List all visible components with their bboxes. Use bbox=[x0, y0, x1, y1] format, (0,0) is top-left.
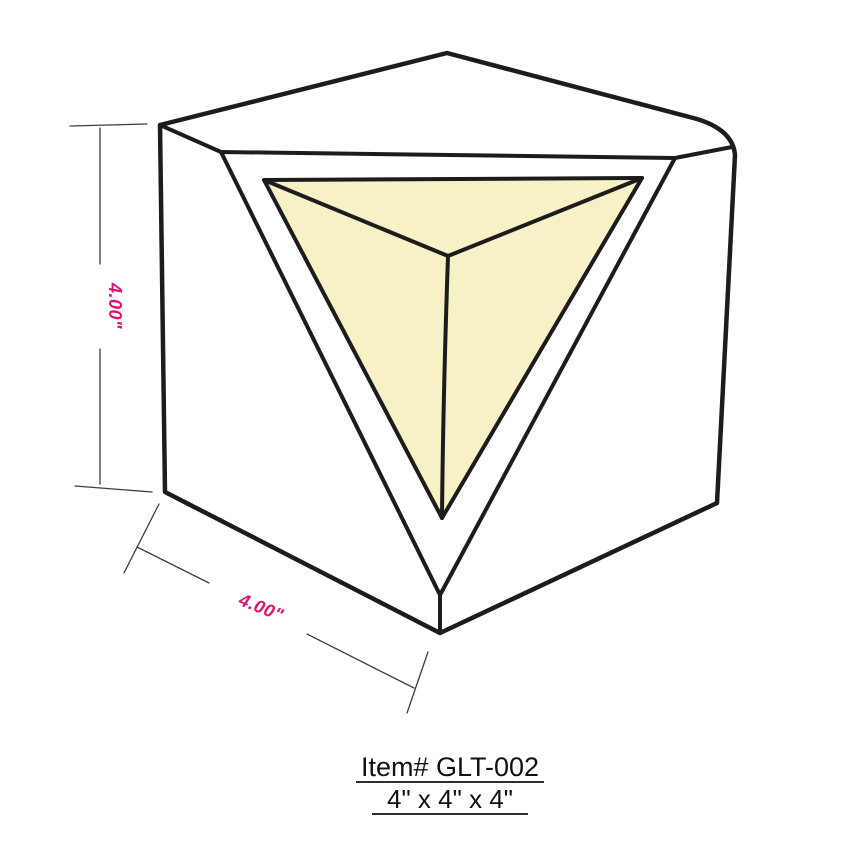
dimension-height: 4.00" bbox=[70, 124, 152, 492]
dimension-line bbox=[307, 634, 414, 688]
drawing-canvas: 4.00" 4.00" bbox=[0, 0, 850, 850]
dimension-extension-line bbox=[70, 124, 147, 126]
caption-block: Item# GLT-002 4" x 4" x 4" bbox=[356, 752, 544, 814]
dimension-extension-line bbox=[124, 504, 159, 573]
dimension-line bbox=[137, 547, 209, 583]
caption-size: 4" x 4" x 4" bbox=[387, 784, 513, 814]
cube-figure bbox=[160, 53, 735, 633]
technical-drawing: 4.00" 4.00" bbox=[0, 0, 850, 850]
dimension-extension-line bbox=[407, 652, 428, 713]
recess-inner-face bbox=[264, 178, 642, 518]
caption-item-number: Item# GLT-002 bbox=[361, 752, 539, 782]
edge-topleft-connector bbox=[160, 125, 221, 152]
dimension-extension-line bbox=[75, 486, 152, 492]
dimension-width: 4.00" bbox=[124, 504, 428, 713]
dimension-height-label: 4.00" bbox=[105, 282, 125, 329]
dimension-width-label: 4.00" bbox=[235, 589, 286, 625]
edge-topright-connector bbox=[675, 147, 732, 158]
